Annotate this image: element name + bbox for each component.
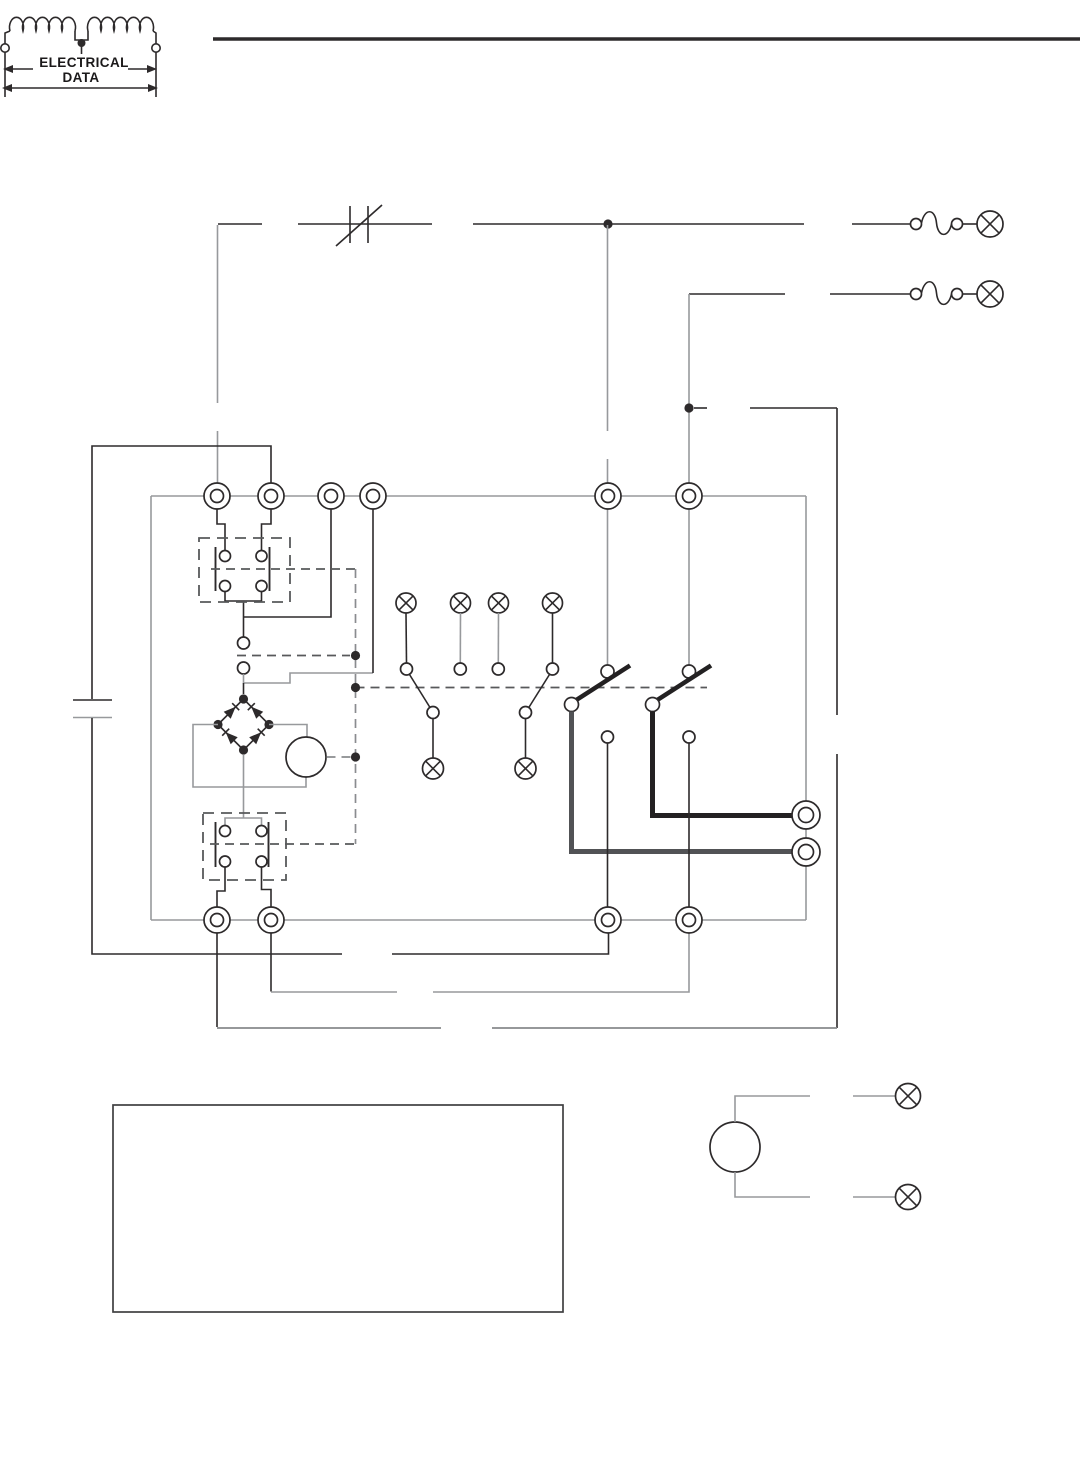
relay-lower-contact-2 xyxy=(256,826,267,837)
coil-right xyxy=(88,17,154,31)
breaker-b-heavy-wire xyxy=(653,712,793,816)
logo-line1: ELECTRICAL xyxy=(39,55,129,70)
generator-circuit xyxy=(710,1084,921,1210)
terminal-t5 xyxy=(595,483,621,509)
pilot-lamp-1 xyxy=(396,593,444,779)
indicator-lamp-1 xyxy=(977,211,1003,237)
pilot-lamp-4 xyxy=(515,593,563,779)
pilot-lamp-2 xyxy=(451,593,471,675)
terminal-t4 xyxy=(360,483,386,509)
feeder-drops xyxy=(218,225,838,1028)
terminal-t6 xyxy=(676,483,702,509)
terminal-t2 xyxy=(258,483,284,509)
toggle-blade-4 xyxy=(529,675,550,708)
relay-lower-contact-1 xyxy=(220,826,231,837)
relay-lower-contact-3 xyxy=(220,856,231,867)
fuse1-element xyxy=(922,212,952,235)
toggle-blade-1 xyxy=(410,675,431,708)
pilot-lamp-3 xyxy=(489,593,509,675)
hour-meter xyxy=(286,737,351,777)
relay-upper-contact-2 xyxy=(256,551,267,562)
terminal-b5 xyxy=(595,907,621,933)
terminal-r1 xyxy=(792,801,820,829)
relay-lower xyxy=(203,813,356,880)
breaker-switch-a xyxy=(565,509,793,907)
logo-terminal-right xyxy=(152,44,160,52)
bottom-interconnects xyxy=(217,933,837,1028)
junction-dot-2 xyxy=(684,403,693,412)
breaker-a-pivot xyxy=(565,698,579,712)
relay-lower-contact-4 xyxy=(256,856,267,867)
terminal-strip xyxy=(204,483,820,933)
notes-box xyxy=(113,1105,563,1312)
terminal-b1 xyxy=(204,907,230,933)
pilot-lamp-bank xyxy=(396,593,563,779)
hour-meter-dial xyxy=(286,737,326,777)
fuse2-right-cap xyxy=(952,289,963,300)
electrical-data-logo: ELECTRICAL DATA xyxy=(1,17,160,97)
fuse1-right-cap xyxy=(952,219,963,230)
generator-lamp-1 xyxy=(896,1084,921,1109)
terminal-b2 xyxy=(258,907,284,933)
terminal-r2 xyxy=(792,838,820,866)
relay-upper-contact-3 xyxy=(220,581,231,592)
switch-to-t4 xyxy=(244,673,374,683)
breaker-b-aux-contact xyxy=(683,731,695,743)
relay-upper-contact-4 xyxy=(256,581,267,592)
breaker-switch-b xyxy=(646,509,793,907)
generator-lamp-2 xyxy=(896,1185,921,1210)
manual-page: ELECTRICAL DATA xyxy=(0,0,1080,1463)
disconnect-symbol xyxy=(336,205,382,246)
breaker-a-aux-contact xyxy=(602,731,614,743)
center-tap xyxy=(75,31,88,40)
fuse1-left-cap xyxy=(911,219,922,230)
bridge-right-link xyxy=(269,725,307,738)
breaker-b-pivot xyxy=(646,698,660,712)
terminal-b6 xyxy=(676,907,702,933)
indicator-lamp-2 xyxy=(977,281,1003,307)
logo-terminal-left xyxy=(1,44,9,52)
terminal-t3 xyxy=(318,483,344,509)
generator-symbol xyxy=(710,1122,760,1172)
relay-upper-contact-1 xyxy=(220,551,231,562)
supply-line-1 xyxy=(218,205,910,246)
supply-line-2 xyxy=(689,281,1003,307)
fuse2-left-cap xyxy=(911,289,922,300)
start-switch-contact-bottom xyxy=(238,662,250,674)
terminal-t1 xyxy=(204,483,230,509)
fuse2-element xyxy=(922,282,952,305)
capacitor-branch xyxy=(73,446,609,954)
fuse-lamp-1 xyxy=(911,211,1004,237)
upper-relay-wiring xyxy=(217,509,331,637)
return-lower-right xyxy=(392,933,609,954)
relay-upper xyxy=(199,538,356,602)
start-switch-contact-top xyxy=(238,637,250,649)
electrical-wiring-diagram: ELECTRICAL DATA xyxy=(0,0,1080,1463)
logo-line2: DATA xyxy=(62,70,99,85)
coil-left xyxy=(10,17,76,31)
relay-upper-outline xyxy=(199,538,290,602)
